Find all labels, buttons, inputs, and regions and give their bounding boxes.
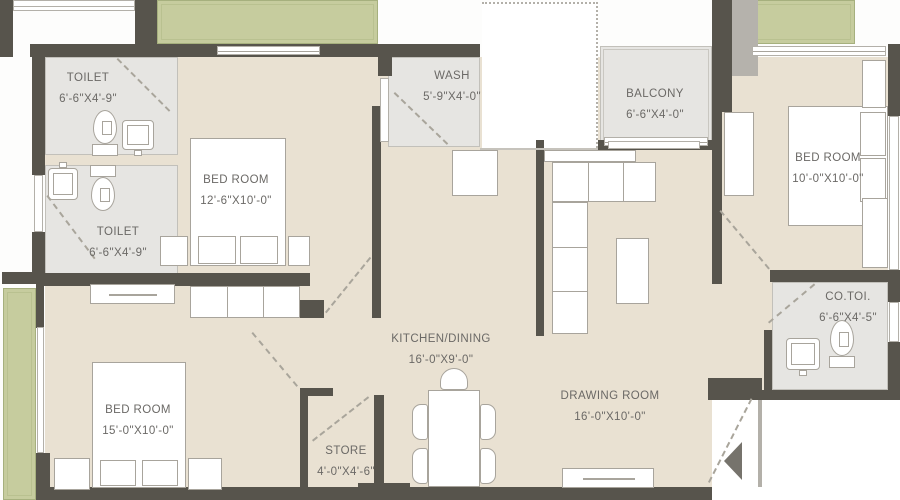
bedside-table	[288, 236, 310, 266]
wall-store-base	[358, 483, 410, 500]
wall-balcony-right-chunk	[712, 0, 732, 112]
cabinet	[452, 150, 498, 196]
wc-tank	[92, 144, 118, 156]
room-name: TOILET	[28, 68, 148, 89]
wall-right-lower	[888, 342, 900, 400]
room-dims: 12'-6"X10'-0"	[166, 191, 306, 212]
window-bedroom2-top	[752, 46, 886, 56]
room-dims: 15'-0"X10'-0"	[68, 421, 208, 442]
room-dims: 16'-0"X9'-0"	[361, 350, 521, 371]
sink-icon	[122, 120, 154, 150]
room-dims: 6'-6"X4'-9"	[58, 243, 178, 264]
wall-right-upper	[888, 44, 900, 116]
room-name: BED ROOM	[166, 170, 306, 191]
window-bedroom3-left	[37, 327, 44, 453]
room-name: STORE	[286, 441, 406, 462]
bedside-table	[54, 458, 90, 490]
room-label-toilet-1: TOILET 6'-6"X4'-9"	[28, 68, 148, 110]
room-dims: 6'-6"X4'-5"	[788, 308, 900, 329]
room-name: BED ROOM	[68, 400, 208, 421]
dining-chair	[412, 448, 428, 484]
room-label-bedroom-2: BED ROOM 10'-0"X10'-0"	[758, 148, 898, 190]
kitchen-counter-top	[544, 150, 636, 162]
room-label-balcony: BALCONY 6'-6"X4'-0"	[595, 84, 715, 126]
wall-kitchen-divider	[536, 140, 544, 336]
window-wash-left	[380, 78, 389, 142]
kitchen-counter-column	[552, 202, 588, 334]
wardrobe	[724, 112, 754, 196]
room-dims: 16'-0"X10'-0"	[530, 407, 690, 428]
sink-tap	[134, 150, 142, 156]
window-toilet2-left	[34, 175, 43, 232]
room-label-toilet-2: TOILET 6'-6"X4'-9"	[58, 222, 178, 264]
window-bedroom1-top	[217, 46, 320, 55]
bedside-table	[188, 458, 222, 490]
sink-icon	[786, 338, 820, 370]
planter-left	[3, 288, 36, 500]
wall-store-top	[300, 388, 333, 396]
room-name: BALCONY	[595, 84, 715, 105]
dining-table	[428, 390, 480, 487]
refrigerator	[616, 238, 649, 304]
room-label-wash: WASH 5'-9"X4'-0"	[392, 66, 512, 108]
wc-tank	[829, 356, 855, 368]
wardrobe	[862, 60, 886, 108]
pillow	[100, 460, 136, 486]
floor-plan: TOILET 6'-6"X4'-9" BED ROOM 12'-6"X10'-0…	[0, 0, 900, 500]
room-label-drawing-room: DRAWING ROOM 16'-0"X10'-0"	[530, 386, 690, 428]
room-name: TOILET	[58, 222, 178, 243]
wall-bedroom2-bottom	[770, 270, 888, 282]
wall-gray-block	[732, 0, 758, 76]
window-bedroom2-right	[889, 116, 899, 270]
wall-cotoi-left	[764, 330, 772, 390]
room-name: CO.TOI.	[788, 287, 900, 308]
room-dims: 6'-6"X4'-9"	[28, 89, 148, 110]
sink-tap	[799, 370, 807, 376]
room-dims: 10'-0"X10'-0"	[758, 169, 898, 190]
wc-tank	[90, 165, 116, 177]
room-name: WASH	[392, 66, 512, 87]
room-dims: 6'-6"X4'-0"	[595, 105, 715, 126]
wardrobe	[190, 286, 300, 318]
dining-chair	[480, 448, 496, 484]
room-label-bedroom-3: BED ROOM 15'-0"X10'-0"	[68, 400, 208, 442]
wall-wash-left	[378, 44, 392, 76]
room-name: DRAWING ROOM	[530, 386, 690, 407]
window-top-left	[13, 0, 135, 11]
wall-top	[30, 44, 386, 57]
wardrobe	[862, 198, 888, 268]
room-name: KITCHEN/DINING	[361, 329, 521, 350]
tv-console	[562, 468, 654, 488]
dining-chair	[440, 368, 468, 390]
wc-icon	[91, 177, 115, 211]
wall-wash-top	[386, 44, 480, 57]
sink-icon	[48, 168, 78, 200]
room-label-co-toilet: CO.TOI. 6'-6"X4'-5"	[788, 287, 900, 329]
dresser	[90, 284, 175, 304]
entry-arrow-icon	[724, 442, 742, 480]
room-label-store: STORE 4'-0"X4'-6"	[286, 441, 406, 483]
wall-entry-chunk	[708, 378, 762, 400]
wall-door-pier	[300, 300, 324, 318]
wall-left-bottom	[36, 453, 50, 487]
wc-icon	[93, 110, 117, 144]
room-name: BED ROOM	[758, 148, 898, 169]
kitchen-counter-row	[552, 162, 656, 202]
pillow	[240, 236, 278, 264]
room-label-bedroom-1: BED ROOM 12'-6"X10'-0"	[166, 170, 306, 212]
wall-drawing-right-thin	[758, 400, 762, 487]
wall-top-stub	[135, 0, 157, 44]
wall-corner-top-left	[0, 0, 13, 57]
room-label-kitchen-dining: KITCHEN/DINING 16'-0"X9'-0"	[361, 329, 521, 371]
pillow	[142, 460, 178, 486]
wall-cotoi-bottom	[755, 390, 888, 400]
dining-chair	[412, 404, 428, 440]
room-dims: 5'-9"X4'-0"	[392, 87, 512, 108]
planter-top-left	[157, 0, 378, 44]
wall-left-lower	[36, 282, 44, 328]
pillow	[198, 236, 236, 264]
window-kitchen-top	[608, 141, 700, 149]
room-dims: 4'-0"X4'-6"	[286, 462, 406, 483]
dining-chair	[480, 404, 496, 440]
